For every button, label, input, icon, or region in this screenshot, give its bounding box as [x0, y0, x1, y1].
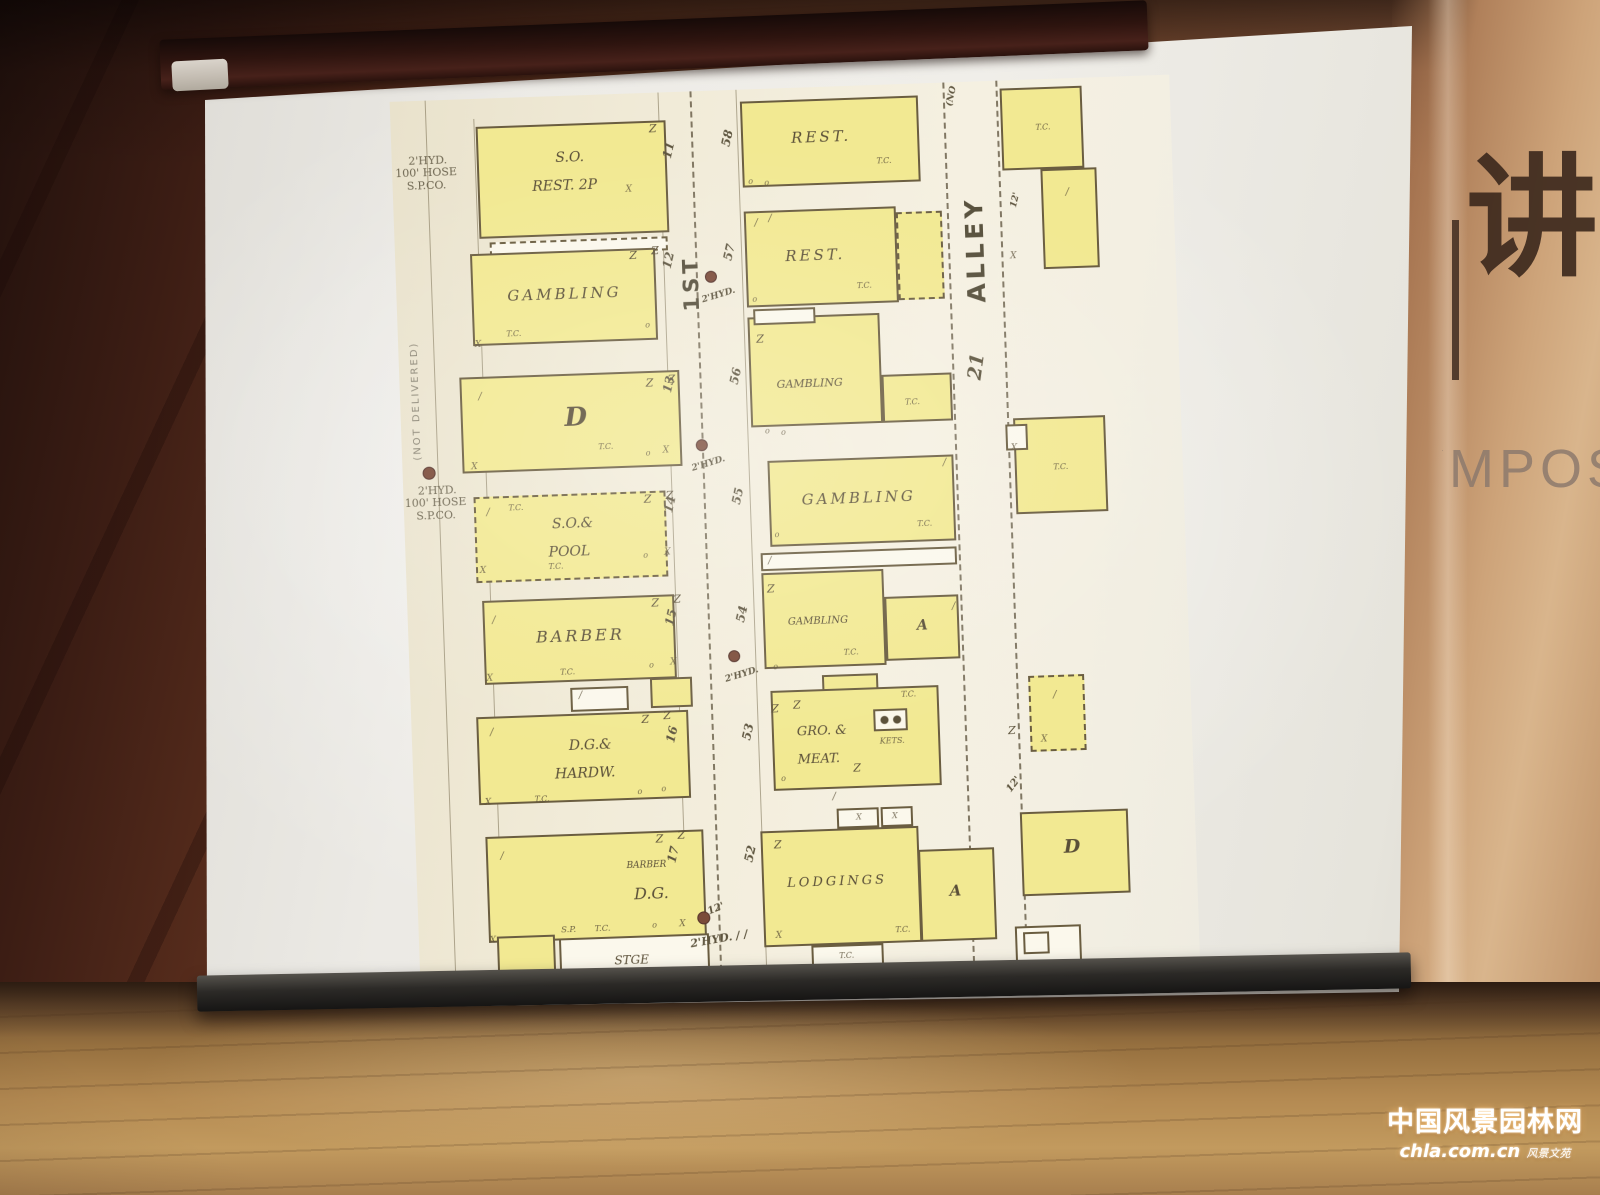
- map-label: X: [1011, 443, 1018, 453]
- map-label: D: [564, 402, 588, 433]
- map-label: o: [781, 428, 786, 437]
- map-label: A: [917, 617, 928, 633]
- map-label: S.P.CO.: [407, 178, 447, 192]
- map-label: o: [645, 448, 650, 457]
- map-label: Z: [667, 373, 675, 386]
- map-label: 58: [718, 128, 735, 147]
- map-block: [761, 546, 958, 571]
- map-label: T.C.: [548, 562, 563, 572]
- map-label: Z: [651, 244, 659, 257]
- map-label: GAMBLING: [776, 376, 843, 391]
- wall-sign-cn-text: 讲坛: [1466, 150, 1600, 289]
- map-label: T.C.: [1035, 122, 1050, 132]
- map-label: REST.: [791, 127, 852, 147]
- map-block: [747, 313, 883, 428]
- map-label: 1ST: [678, 255, 704, 312]
- map-label: T.C.: [594, 924, 610, 935]
- hydrant-dot: [705, 271, 717, 283]
- map-label: REST.: [785, 245, 846, 265]
- map-label: /: [768, 555, 772, 566]
- map-block: [753, 307, 816, 325]
- map-label: X: [1041, 734, 1048, 744]
- map-label: X: [892, 811, 898, 820]
- right-wall-banner: 讲坛 YMPOSI: [1392, 0, 1600, 1090]
- map-label: /: [478, 391, 482, 402]
- watermark-tagline: 风景文苑: [1527, 1147, 1571, 1160]
- map-label: o: [649, 661, 654, 670]
- hydrant-dot: [422, 467, 435, 480]
- map-label: T.C.: [905, 397, 920, 407]
- map-label: o: [661, 784, 666, 793]
- map-label: X: [475, 340, 482, 350]
- map-label: Z: [651, 596, 659, 609]
- map-label: /: [579, 690, 583, 701]
- watermark-url: chla.com.cn: [1399, 1141, 1520, 1162]
- map-label: /: [490, 727, 494, 738]
- map-label: o: [652, 921, 657, 930]
- map-label: D.G.&: [569, 737, 612, 754]
- map-block: [1028, 674, 1087, 752]
- map-label: o: [645, 320, 650, 329]
- map-label: 57: [720, 242, 737, 261]
- map-label: 21: [963, 352, 988, 381]
- photo-canvas: 讲坛 YMPOSI 1STALLEY21(NO(NOT DELIVERED)2'…: [0, 0, 1600, 1195]
- watermark: 中国风景园林网 chla.com.cn 风景文苑: [1378, 1100, 1592, 1162]
- map-label: /: [768, 213, 772, 224]
- stage-floor: [0, 982, 1600, 1195]
- map-label: /: [492, 615, 496, 626]
- map-label: HARDW.: [555, 764, 616, 782]
- map-label: 100' HOSE: [395, 165, 457, 180]
- map-label: REST. 2P: [532, 177, 597, 195]
- map-label: /: [832, 791, 836, 802]
- map-label: /: [1053, 689, 1057, 700]
- map-label: Z: [663, 709, 671, 722]
- map-label: T.C.: [843, 647, 858, 657]
- hydrant-dot: [696, 439, 708, 451]
- map-label: Z: [665, 489, 673, 502]
- map-label: X: [625, 184, 632, 194]
- map-label: 12': [1009, 192, 1022, 209]
- map-label: 11: [660, 140, 677, 159]
- map-block: [473, 490, 668, 583]
- map-label: T.C.: [1053, 462, 1068, 472]
- map-label: T.C.: [598, 442, 613, 452]
- map-label: o: [748, 177, 753, 186]
- map-label: T.C.: [508, 503, 523, 513]
- map-label: X: [670, 657, 677, 667]
- map-label: 100' HOSE: [405, 495, 467, 510]
- map-label: STGE: [614, 952, 649, 967]
- map-label: GRO. &: [797, 723, 847, 740]
- map-label: S.P.: [561, 925, 576, 936]
- map-label: X: [856, 812, 862, 821]
- map-label: S.O.: [555, 149, 584, 166]
- map-label: /: [754, 218, 758, 229]
- map-label: o: [764, 178, 769, 187]
- map-sheet: 1STALLEY21(NO(NOT DELIVERED)2'HYD.100' H…: [390, 75, 1201, 996]
- map-label: Z: [756, 332, 764, 345]
- screen-bracket: [171, 59, 228, 92]
- map-label: 12: [660, 251, 677, 270]
- map-label: /: [952, 601, 956, 612]
- map-label: Z: [649, 122, 657, 135]
- wall-sign-chinese: 讲坛: [1452, 150, 1600, 420]
- map-block: [476, 710, 691, 805]
- map-label: Z: [853, 761, 861, 774]
- map-label: 2'HYD.: [724, 665, 760, 685]
- map-label: /: [486, 507, 490, 518]
- map-label: X: [486, 674, 493, 684]
- map-label: 2'HYD.: [690, 454, 726, 474]
- map-block: [896, 211, 945, 301]
- map-label: S.P.CO.: [416, 508, 456, 522]
- map-label: BARBER: [536, 625, 625, 647]
- map-label: T.C.: [876, 156, 891, 166]
- map-label: S.O.&: [552, 515, 594, 532]
- map-label: 52: [741, 844, 758, 863]
- map-label: Z: [774, 838, 782, 851]
- wall-sign-partial-char: [1452, 220, 1459, 380]
- map-label: /: [1065, 187, 1069, 198]
- map-block: [425, 101, 457, 990]
- map-label: T.C.: [506, 329, 521, 339]
- map-label: Z: [767, 582, 775, 595]
- map-label: 2'HYD.: [701, 286, 737, 306]
- map-label: X: [485, 798, 492, 808]
- map-label: T.C.: [857, 281, 872, 291]
- map-block: [873, 708, 908, 731]
- map-label: T.C.: [895, 925, 910, 935]
- map-label: /: [943, 457, 947, 468]
- hydrant-dot: [728, 650, 740, 662]
- map-label: Z: [644, 492, 652, 505]
- map-block: [650, 677, 693, 708]
- map-label: KETS.: [880, 736, 905, 746]
- map-label: X: [679, 919, 686, 929]
- map-label: BARBER: [626, 860, 666, 871]
- map-label: X: [480, 566, 487, 576]
- map-label: o: [643, 551, 648, 560]
- map-label: Z: [646, 376, 654, 389]
- wall-sign-english: YMPOSI: [1442, 438, 1600, 518]
- map-label: Z: [655, 832, 663, 845]
- map-label: D.G.: [634, 883, 669, 903]
- map-block: [1023, 931, 1050, 954]
- map-label: o: [781, 774, 786, 783]
- map-label: GAMBLING: [788, 615, 848, 628]
- map-label: T.C.: [560, 667, 575, 677]
- watermark-url-line: chla.com.cn 风景文苑: [1378, 1141, 1592, 1162]
- map-label: (NOT DELIVERED): [409, 341, 424, 460]
- map-label: o: [752, 295, 757, 304]
- map-label: Z: [793, 698, 801, 711]
- map-label: Z: [771, 702, 779, 715]
- map-label: T.C.: [534, 794, 549, 804]
- map-label: o: [637, 787, 642, 796]
- map-label: X: [490, 936, 497, 946]
- map-label: o: [765, 426, 770, 435]
- map-label: X: [776, 931, 783, 941]
- watermark-title: 中国风景园林网: [1378, 1100, 1592, 1139]
- map-label: Z: [641, 713, 649, 726]
- map-label: T.C.: [901, 689, 916, 699]
- map-label: Z: [677, 829, 685, 842]
- map-label: o: [774, 530, 779, 539]
- map-label: MEAT.: [797, 751, 840, 767]
- map-label: 53: [739, 722, 756, 741]
- map-label: Z: [673, 593, 681, 606]
- map-block: [1040, 167, 1099, 269]
- wall-sign-en-text: YMPOSI: [1442, 438, 1600, 500]
- map-label: 12': [706, 901, 726, 918]
- map-label: (NO: [945, 85, 959, 107]
- map-label: ALLEY: [959, 196, 992, 303]
- map-label: 56: [727, 366, 744, 385]
- map-label: T.C.: [917, 519, 932, 529]
- map-label: A: [949, 881, 961, 899]
- map-label: D: [1063, 835, 1080, 858]
- map-label: o: [773, 662, 778, 671]
- map-label: X: [663, 445, 670, 455]
- map-label: X: [471, 462, 478, 472]
- map-label: X: [1010, 251, 1017, 261]
- map-label: /: [500, 851, 504, 862]
- map-label: Z: [629, 249, 637, 262]
- map-label: T.C.: [839, 951, 854, 961]
- map-label: POOL: [548, 543, 590, 560]
- map-label: Z: [1008, 724, 1016, 737]
- map-label: 54: [733, 604, 750, 623]
- map-label: X: [664, 547, 671, 557]
- map-label: 55: [729, 486, 746, 505]
